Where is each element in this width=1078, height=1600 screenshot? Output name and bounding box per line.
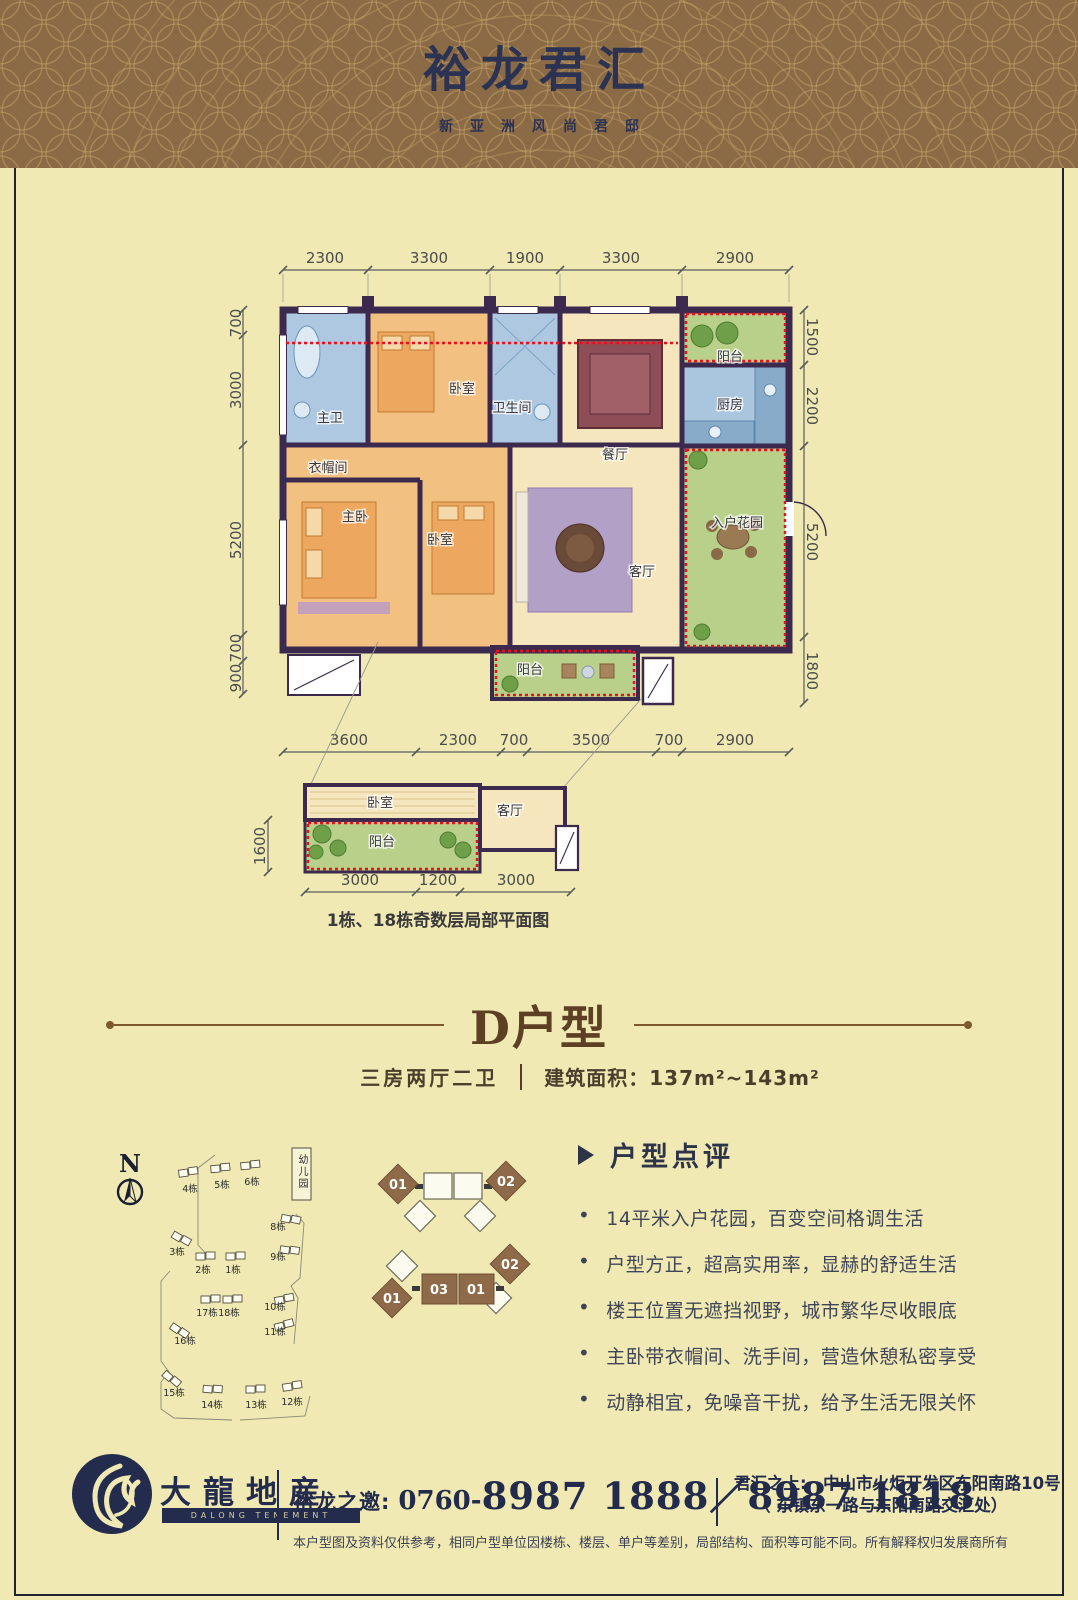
address-label: 君汇之上: xyxy=(734,1474,807,1493)
lift-shaft xyxy=(643,658,673,704)
phone-prefix: 0760- xyxy=(398,1486,481,1516)
dims-left: 700 3000 5200 700 900 xyxy=(227,306,247,698)
header-band: 裕龙君汇 新亚洲风尚君邸 xyxy=(0,0,1078,168)
building-clusters xyxy=(162,1160,302,1394)
address-line1: 君汇之上: 中山市火炬开发区东阳南路10号 xyxy=(734,1473,1061,1495)
room-label-bedroom1: 卧室 xyxy=(449,381,475,397)
partial-plan: 卧室 客厅 阳台 1600 3000 1200 3000 1栋、18栋奇数层局部… xyxy=(251,785,578,931)
bullet-dot-icon: • xyxy=(578,1204,590,1226)
frame-right xyxy=(1062,168,1064,1596)
bld-label-14: 14栋 xyxy=(201,1399,223,1411)
review-bullet-text: 动静相宜，免噪音干扰，给予生活无限关怀 xyxy=(606,1388,977,1415)
title-rule-left xyxy=(114,1024,444,1026)
poster-page: 裕龙君汇 新亚洲风尚君邸 xyxy=(0,0,1078,1600)
unit-subtitle-row: 三房两厅二卫 建筑面积：137m²~143m² xyxy=(90,1062,1078,1091)
bld-label-1: 1栋 xyxy=(225,1264,241,1276)
partial-label-balcony: 阳台 xyxy=(369,835,395,850)
bld-label-5: 5栋 xyxy=(214,1179,230,1191)
bullet-dot-icon: • xyxy=(578,1388,590,1410)
room-label-master-bedroom: 主卧 xyxy=(342,510,368,525)
review-bullet: •14平米入户花园，百变空间格调生活 xyxy=(578,1204,1018,1231)
dim-top-4: 2900 xyxy=(716,249,754,267)
bld-label-6: 6栋 xyxy=(244,1176,260,1188)
review-heading: 户型点评 xyxy=(610,1135,734,1174)
dim-top-2: 1900 xyxy=(506,249,544,267)
unit-area: 建筑面积：137m²~143m² xyxy=(544,1062,819,1091)
partial-dim-b1: 1200 xyxy=(419,871,457,889)
keyplan-b-01L: 01 xyxy=(383,1292,401,1307)
room-label-cloakroom: 衣帽间 xyxy=(308,460,347,476)
title-dot-right xyxy=(964,1021,972,1029)
dalong-logo-icon xyxy=(70,1452,154,1536)
review-bullet-text: 14平米入户花园，百变空间格调生活 xyxy=(606,1204,924,1231)
key-diagram-a: 01 02 xyxy=(378,1161,526,1231)
review-section: 户型点评 •14平米入户花园，百变空间格调生活 •户型方正，超高实用率，显赫的舒… xyxy=(578,1135,1018,1434)
keyplan-b-01M: 01 xyxy=(467,1283,485,1298)
bld-label-17: 17栋 xyxy=(196,1307,218,1319)
room-label-balcony-top: 阳台 xyxy=(717,350,743,365)
footer-divider-1 xyxy=(277,1470,279,1540)
dim-left-0: 700 xyxy=(227,309,245,338)
review-bullet-text: 户型方正，超高实用率，显赫的舒适生活 xyxy=(606,1250,957,1277)
review-bullet: •主卧带衣帽间、洗手间，营造休憩私密享受 xyxy=(578,1342,1018,1369)
dim-bottom-4: 700 xyxy=(655,731,684,749)
north-compass-icon: N xyxy=(118,1149,142,1204)
dim-bottom-3: 3500 xyxy=(572,731,610,749)
unit-key-diagrams: 01 02 01 03 01 02 xyxy=(360,1138,560,1323)
north-label: N xyxy=(119,1149,141,1178)
partial-dim-left: 1600 xyxy=(251,827,269,865)
address-line2: （ 东镇东一路与东阳南路交汇处） xyxy=(734,1495,1061,1517)
footer-divider-2 xyxy=(716,1478,718,1526)
dim-right-1: 2200 xyxy=(803,387,821,425)
room-label-living: 客厅 xyxy=(629,564,655,580)
dim-top-3: 3300 xyxy=(602,249,640,267)
dim-bottom-2: 700 xyxy=(500,731,529,749)
partial-dim-b2: 3000 xyxy=(497,871,535,889)
review-bullet-text: 主卧带衣帽间、洗手间，营造休憩私密享受 xyxy=(606,1342,977,1369)
address-block: 君汇之上: 中山市火炬开发区东阳南路10号 （ 东镇东一路与东阳南路交汇处） xyxy=(734,1473,1061,1518)
bld-label-10: 10栋 xyxy=(264,1301,286,1313)
key-diagram-b: 01 03 01 02 xyxy=(372,1244,530,1318)
title-dot-left xyxy=(106,1021,114,1029)
dim-left-2: 5200 xyxy=(227,521,245,559)
bld-label-3: 3栋 xyxy=(169,1246,185,1258)
room-label-balcony-bottom: 阳台 xyxy=(517,663,543,678)
review-heading-row: 户型点评 xyxy=(578,1135,1018,1174)
brand-title: 裕龙君汇 xyxy=(423,46,655,94)
building-labels: 4栋 5栋 6栋 3栋 2栋 1栋 8栋 9栋 17栋 18栋 16栋 10栋 … xyxy=(163,1176,303,1411)
dim-bottom-0: 3600 xyxy=(330,731,368,749)
kindergarten-label: 幼儿园 xyxy=(296,1153,308,1190)
bld-label-11: 11栋 xyxy=(264,1326,286,1338)
dims-top: 2300 3300 1900 3300 2900 xyxy=(279,249,793,302)
room-label-entry-garden: 入户花园 xyxy=(711,515,763,531)
room-label-kitchen: 厨房 xyxy=(717,397,743,413)
unit-layout: 三房两厅二卫 xyxy=(360,1062,498,1091)
bld-label-8: 8栋 xyxy=(270,1221,286,1233)
room-label-dining: 餐厅 xyxy=(602,447,628,463)
unit-title-row: D户型 xyxy=(0,995,1078,1055)
dim-right-3: 1800 xyxy=(803,652,821,690)
dim-bottom-1: 2300 xyxy=(439,731,477,749)
bld-label-2: 2栋 xyxy=(195,1264,211,1276)
bld-label-12: 12栋 xyxy=(281,1396,303,1408)
subtitle-divider xyxy=(520,1064,522,1090)
partial-label-bedroom: 卧室 xyxy=(367,795,393,811)
keyplan-a-02: 02 xyxy=(497,1175,515,1190)
partial-label-living: 客厅 xyxy=(497,803,523,819)
bay-window xyxy=(288,655,360,695)
floor-plan: 主卫 卧室 卫生间 餐厅 阳台 厨房 衣帽间 主卧 卧室 客厅 入户花园 阳台 xyxy=(210,240,830,950)
bld-label-15: 15栋 xyxy=(163,1387,185,1399)
title-rule-right xyxy=(634,1024,964,1026)
review-bullet: •楼王位置无遮挡视野，城市繁华尽收眼底 xyxy=(578,1296,1018,1323)
review-bullet: •动静相宜，免噪音干扰，给予生活无限关怀 xyxy=(578,1388,1018,1415)
keyplan-b-02: 02 xyxy=(501,1258,519,1273)
bullet-dot-icon: • xyxy=(578,1296,590,1318)
triangle-right-icon xyxy=(578,1145,594,1165)
dim-bottom-5: 2900 xyxy=(716,731,754,749)
unit-title: D户型 xyxy=(470,992,608,1058)
frame-left xyxy=(14,168,16,1596)
review-bullet-text: 楼王位置无遮挡视野，城市繁华尽收眼底 xyxy=(606,1296,957,1323)
address-text: 中山市火炬开发区东阳南路10号 xyxy=(823,1474,1060,1493)
bld-label-13: 13栋 xyxy=(245,1399,267,1411)
dim-left-4: 900 xyxy=(227,664,245,693)
bld-label-18: 18栋 xyxy=(218,1307,240,1319)
site-plan: N 幼儿园 xyxy=(100,1128,325,1423)
keyplan-b-03: 03 xyxy=(430,1283,448,1298)
room-label-bathroom: 卫生间 xyxy=(492,401,531,416)
dim-top-1: 3300 xyxy=(410,249,448,267)
disclaimer-text: 本户型图及资料仅供参考，相同户型单位因楼栋、楼层、单户等差别，局部结构、面积等可… xyxy=(293,1532,1008,1551)
bld-label-16: 16栋 xyxy=(174,1335,196,1347)
dim-left-3: 700 xyxy=(227,634,245,663)
dim-right-2: 5200 xyxy=(803,523,821,561)
room-label-master-bath: 主卫 xyxy=(317,411,343,426)
dims-bottom: 3600 2300 700 3500 700 2900 xyxy=(279,731,793,756)
partial-dim-b0: 3000 xyxy=(341,871,379,889)
keyplan-a-01: 01 xyxy=(389,1178,407,1193)
review-bullet-list: •14平米入户花园，百变空间格调生活 •户型方正，超高实用率，显赫的舒适生活 •… xyxy=(578,1204,1018,1415)
partial-plan-caption: 1栋、18栋奇数层局部平面图 xyxy=(327,910,550,931)
bullet-dot-icon: • xyxy=(578,1250,590,1272)
bullet-dot-icon: • xyxy=(578,1342,590,1364)
kindergarten-box: 幼儿园 xyxy=(292,1148,311,1200)
phone-label: 裕龙之邀: xyxy=(293,1486,390,1516)
brand-subtitle: 新亚洲风尚君邸 xyxy=(422,116,656,136)
bld-label-9: 9栋 xyxy=(270,1251,286,1263)
room-label-bedroom2: 卧室 xyxy=(427,532,453,548)
footer: 大龍地産 DALONG TENEMENT 裕龙之邀: 0760- 8987 18… xyxy=(0,1440,1078,1600)
dim-left-1: 3000 xyxy=(227,371,245,409)
bld-label-4: 4栋 xyxy=(182,1183,198,1195)
dim-top-0: 2300 xyxy=(306,249,344,267)
review-bullet: •户型方正，超高实用率，显赫的舒适生活 xyxy=(578,1250,1018,1277)
dim-right-0: 1500 xyxy=(803,318,821,356)
